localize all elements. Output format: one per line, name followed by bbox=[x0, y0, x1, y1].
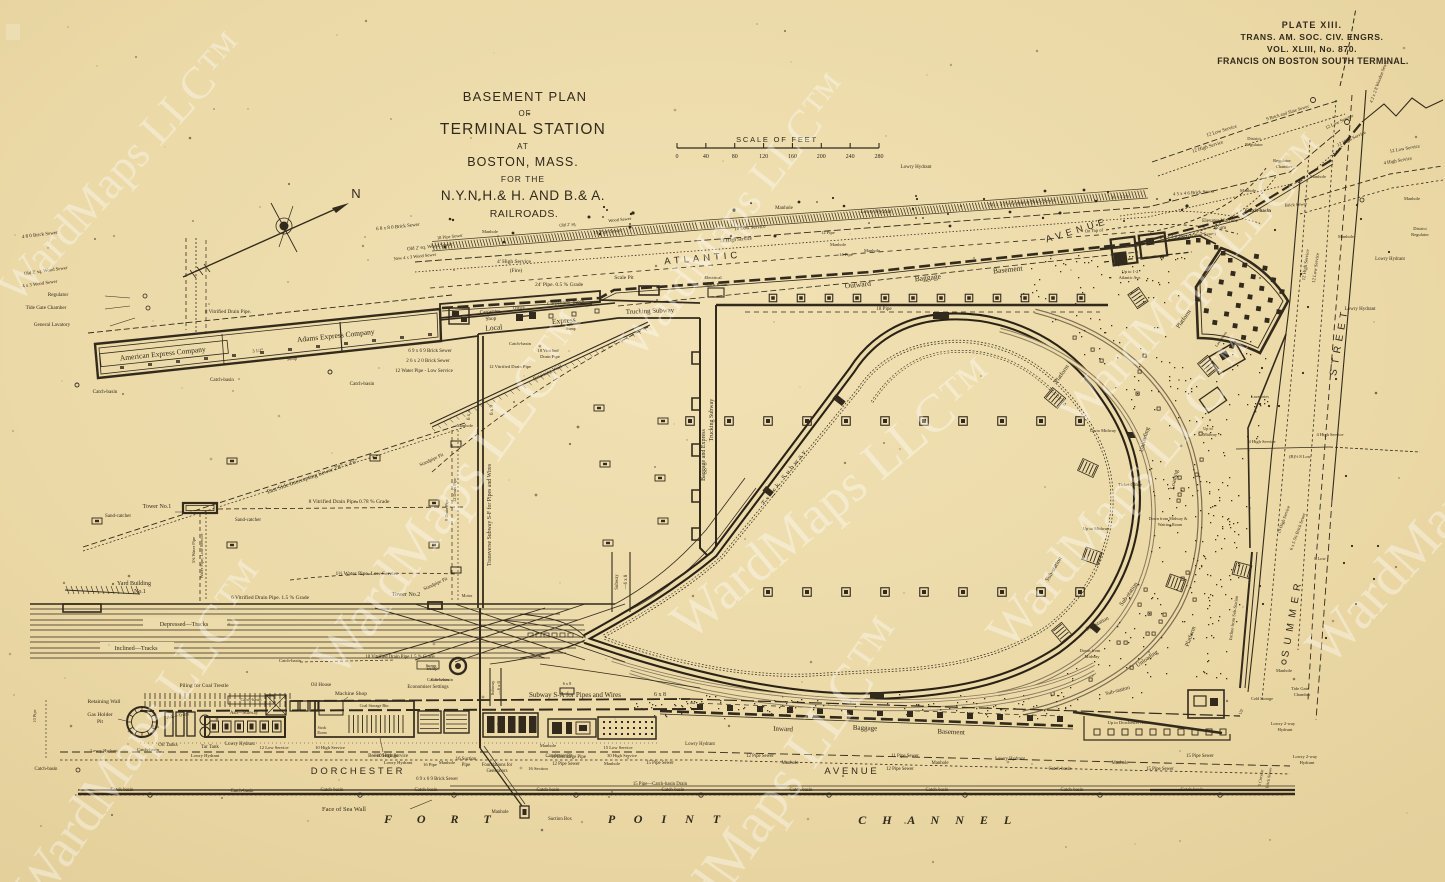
svg-text:BOSTON, MASS.: BOSTON, MASS. bbox=[467, 155, 578, 169]
svg-text:Lowry Hydrant: Lowry Hydrant bbox=[995, 757, 1025, 762]
svg-text:Lowry Hydrant: Lowry Hydrant bbox=[1375, 257, 1405, 262]
svg-text:16 Pipe: 16 Pipe bbox=[423, 762, 437, 767]
svg-text:Hydrant: Hydrant bbox=[1300, 760, 1315, 765]
svg-text:(Fire): (Fire) bbox=[510, 267, 523, 274]
svg-text:8 Low: 8 Low bbox=[1314, 556, 1326, 561]
svg-text:Lavatories: Lavatories bbox=[1251, 394, 1269, 399]
svg-text:Midway: Midway bbox=[1085, 654, 1101, 659]
svg-text:Machine Shop: Machine Shop bbox=[335, 691, 367, 697]
svg-text:Manhole: Manhole bbox=[1338, 234, 1354, 239]
svg-text:▮▮: ▮▮ bbox=[1160, 254, 1164, 259]
svg-text:80: 80 bbox=[732, 154, 738, 160]
svg-text:6 9 x 6 9 Brick Sewer: 6 9 x 6 9 Brick Sewer bbox=[408, 349, 452, 354]
svg-text:Coal Storage Bin: Coal Storage Bin bbox=[360, 703, 390, 708]
svg-text:District: District bbox=[1413, 226, 1427, 231]
svg-text:8 Vitrified Drain Pipe.: 8 Vitrified Drain Pipe. bbox=[205, 308, 251, 315]
svg-text:Waiting Room: Waiting Room bbox=[1158, 522, 1183, 527]
svg-text:Basement: Basement bbox=[937, 728, 965, 737]
svg-text:Manhole: Manhole bbox=[830, 242, 846, 247]
svg-text:Manhole: Manhole bbox=[1276, 668, 1292, 673]
svg-text:Inclined—Tracks: Inclined—Tracks bbox=[114, 645, 158, 652]
svg-text:Pipe: Pipe bbox=[462, 763, 471, 768]
svg-text:Stock: Stock bbox=[318, 726, 327, 730]
svg-text:DORCHESTER: DORCHESTER bbox=[311, 766, 406, 777]
svg-text:Lowry Hydrant: Lowry Hydrant bbox=[1345, 307, 1377, 312]
svg-text:Motor: Motor bbox=[462, 593, 473, 598]
svg-text:Manhole: Manhole bbox=[604, 761, 620, 766]
svg-text:—10 High Service: —10 High Service bbox=[371, 754, 408, 759]
svg-text:Regulator: Regulator bbox=[48, 292, 69, 298]
svg-text:4 High Service: 4 High Service bbox=[1249, 439, 1276, 444]
svg-text:Suction Box: Suction Box bbox=[548, 817, 572, 822]
svg-text:16 Suction: 16 Suction bbox=[456, 757, 477, 762]
svg-text:15 Pipe Sewer: 15 Pipe Sewer bbox=[1146, 767, 1174, 772]
svg-text:Down from: Down from bbox=[1080, 648, 1101, 653]
svg-text:Lowry Hydrant: Lowry Hydrant bbox=[384, 760, 413, 765]
svg-text:Sand-catcher: Sand-catcher bbox=[235, 518, 261, 523]
svg-text:—6 x 8: —6 x 8 bbox=[496, 681, 501, 696]
svg-text:12 Low Service: 12 Low Service bbox=[259, 745, 288, 750]
svg-text:Face of Sea Wall: Face of Sea Wall bbox=[322, 806, 366, 813]
svg-text:—14 Discharge Pipe: —14 Discharge Pipe bbox=[545, 755, 586, 760]
svg-text:Lowry Hydrant: Lowry Hydrant bbox=[901, 165, 933, 170]
svg-text:Down from Midway &: Down from Midway & bbox=[1149, 516, 1188, 521]
svg-text:PLATE XIII.: PLATE XIII. bbox=[1282, 20, 1343, 30]
svg-text:Lowry 2-way: Lowry 2-way bbox=[1293, 754, 1318, 759]
svg-text:Chamber: Chamber bbox=[1294, 692, 1311, 697]
svg-text:P O I N T: P O I N T bbox=[608, 812, 728, 826]
svg-text:Catch-basin: Catch-basin bbox=[210, 378, 234, 383]
svg-text:AVENUE: AVENUE bbox=[824, 766, 879, 777]
svg-text:Manhole: Manhole bbox=[482, 229, 498, 234]
svg-text:Sump: Sump bbox=[426, 667, 438, 672]
svg-text:Catch-basin: Catch-basin bbox=[279, 658, 302, 663]
svg-text:6 x 8: 6 x 8 bbox=[563, 681, 572, 686]
svg-text:F O R T: F O R T bbox=[383, 812, 502, 826]
svg-text:15 Low Service: 15 Low Service bbox=[603, 745, 632, 750]
svg-text:40: 40 bbox=[703, 154, 709, 160]
svg-text:Catch-basin: Catch-basin bbox=[93, 389, 118, 395]
svg-text:280: 280 bbox=[875, 154, 884, 160]
svg-text:Up: Up bbox=[1238, 709, 1244, 715]
svg-text:Manhole: Manhole bbox=[931, 761, 948, 766]
svg-text:10 Pipe: 10 Pipe bbox=[32, 709, 37, 722]
svg-text:Economiser Settings: Economiser Settings bbox=[407, 685, 448, 690]
svg-text:District: District bbox=[1247, 136, 1261, 141]
svg-text:Ash—Subway: Ash—Subway bbox=[230, 711, 259, 716]
svg-text:Lowry Hydrant: Lowry Hydrant bbox=[685, 742, 715, 747]
svg-text:5⅝ Water Pipe: 5⅝ Water Pipe bbox=[191, 537, 196, 563]
svg-text:4' High Service: 4' High Service bbox=[497, 259, 532, 265]
svg-text:18 Pipe: 18 Pipe bbox=[876, 307, 892, 312]
svg-text:Hydrant: Hydrant bbox=[1278, 727, 1293, 732]
svg-text:Shop: Shop bbox=[485, 316, 496, 323]
svg-text:Lowry Hydrant: Lowry Hydrant bbox=[861, 210, 893, 215]
svg-text:Regulator: Regulator bbox=[1411, 232, 1429, 237]
svg-text:Office: Office bbox=[513, 305, 525, 311]
svg-text:FOR THE: FOR THE bbox=[501, 174, 545, 184]
svg-text:Manhole: Manhole bbox=[1111, 761, 1128, 766]
svg-text:Tide Gate: Tide Gate bbox=[1291, 686, 1309, 691]
svg-text:(B)½ 8 Low: (B)½ 8 Low bbox=[1289, 454, 1312, 459]
svg-text:Subway S-A for Pipes and Wires: Subway S-A for Pipes and Wires bbox=[529, 691, 621, 699]
svg-text:4 High Service: 4 High Service bbox=[1317, 432, 1344, 437]
svg-text:30 High Service: 30 High Service bbox=[607, 753, 637, 758]
svg-text:2 6 x 2 0 Brick Sewer: 2 6 x 2 0 Brick Sewer bbox=[406, 359, 450, 364]
svg-text:6 x 8: 6 x 8 bbox=[654, 692, 666, 698]
svg-text:Catch-basin: Catch-basin bbox=[427, 677, 450, 682]
svg-text:200: 200 bbox=[817, 154, 826, 160]
svg-text:12 Pipe Sewer: 12 Pipe Sewer bbox=[886, 767, 914, 772]
svg-text:14 Pipe: 14 Pipe bbox=[839, 252, 853, 257]
svg-text:N.Y.N.H.& H. AND B.& A.: N.Y.N.H.& H. AND B.& A. bbox=[441, 188, 605, 203]
svg-text:Manhole: Manhole bbox=[1404, 196, 1420, 201]
svg-text:C H A N N E L: C H A N N E L bbox=[858, 813, 1017, 827]
svg-text:11 Pipe Sewer: 11 Pipe Sewer bbox=[891, 754, 919, 759]
svg-text:FRANCIS ON BOSTON SOUTH TERMIN: FRANCIS ON BOSTON SOUTH TERMINAL. bbox=[1217, 56, 1408, 66]
svg-text:Lowry Hydrant: Lowry Hydrant bbox=[225, 742, 255, 747]
svg-text:Tide Gate Chamber: Tide Gate Chamber bbox=[26, 305, 67, 311]
svg-text:Retaining Wall: Retaining Wall bbox=[88, 699, 121, 705]
svg-text:Subway: Subway bbox=[615, 574, 620, 590]
svg-text:8 Vitrified Drain Pipe. 0.78: 8 Vitrified Drain Pipe. 0.78 % Grade bbox=[309, 498, 390, 505]
svg-text:Scale Pit: Scale Pit bbox=[614, 275, 634, 281]
svg-text:Gas Holder: Gas Holder bbox=[87, 712, 112, 718]
svg-text:Trucking Subway: Trucking Subway bbox=[709, 399, 715, 442]
svg-text:TRANS. AM. SOC. CIV. ENGRS.: TRANS. AM. SOC. CIV. ENGRS. bbox=[1240, 32, 1383, 42]
svg-text:Catch-basin: Catch-basin bbox=[1049, 767, 1073, 772]
svg-text:—6 x 8: —6 x 8 bbox=[624, 574, 629, 590]
svg-text:N: N bbox=[351, 186, 360, 201]
svg-text:VOL. XLIII, No. 870.: VOL. XLIII, No. 870. bbox=[1267, 44, 1357, 54]
svg-text:15 Pipe Sewer: 15 Pipe Sewer bbox=[1186, 754, 1214, 759]
svg-text:Sand-catcher: Sand-catcher bbox=[105, 514, 131, 519]
svg-text:6 9 x 6 9 Brick Sewer: 6 9 x 6 9 Brick Sewer bbox=[416, 777, 458, 782]
svg-text:240: 240 bbox=[846, 154, 855, 160]
svg-text:Atlantic Ave.: Atlantic Ave. bbox=[1119, 275, 1142, 280]
svg-text:RAILROADS.: RAILROADS. bbox=[490, 208, 559, 220]
svg-text:Catch-basin: Catch-basin bbox=[241, 697, 263, 702]
svg-text:15 Pipe Sewer: 15 Pipe Sewer bbox=[646, 761, 674, 766]
svg-text:Yard Building: Yard Building bbox=[117, 581, 151, 587]
svg-text:12 Pipe Sewer: 12 Pipe Sewer bbox=[552, 762, 580, 767]
svg-text:AT: AT bbox=[517, 142, 529, 151]
svg-text:Baggage and Express: Baggage and Express bbox=[701, 429, 707, 481]
svg-text:Regulator: Regulator bbox=[1245, 142, 1263, 147]
svg-text:Catch-basin: Catch-basin bbox=[35, 767, 59, 772]
svg-text:Manhole: Manhole bbox=[439, 760, 455, 765]
svg-text:Lowry 2-way: Lowry 2-way bbox=[1271, 721, 1296, 726]
svg-text:12 Pipe: 12 Pipe bbox=[821, 230, 835, 235]
svg-text:Up to 1-2: Up to 1-2 bbox=[1122, 269, 1138, 274]
svg-text:Manhole: Manhole bbox=[864, 248, 880, 253]
svg-text:Tar Tank: Tar Tank bbox=[201, 745, 219, 750]
svg-text:Lowry Hydrant: Lowry Hydrant bbox=[191, 753, 220, 758]
svg-text:Oil House: Oil House bbox=[311, 683, 332, 688]
svg-text:Catch-basin: Catch-basin bbox=[350, 381, 375, 387]
svg-text:10 High Service: 10 High Service bbox=[315, 745, 345, 750]
svg-text:16 Section: 16 Section bbox=[528, 766, 548, 771]
svg-text:Tower No.1: Tower No.1 bbox=[143, 504, 172, 510]
svg-text:Up to Dorchester Ave.: Up to Dorchester Ave. bbox=[1108, 720, 1149, 725]
svg-text:TERMINAL STATION: TERMINAL STATION bbox=[440, 121, 606, 138]
svg-text:Manhole: Manhole bbox=[775, 206, 794, 211]
svg-text:Cold Storage: Cold Storage bbox=[1251, 696, 1273, 701]
svg-text:Foundations for: Foundations for bbox=[482, 763, 513, 768]
svg-text:12 Water Pipe - Low Service: 12 Water Pipe - Low Service bbox=[395, 369, 453, 374]
svg-text:No.1: No.1 bbox=[134, 589, 146, 595]
svg-text:General Lavatory: General Lavatory bbox=[34, 322, 71, 328]
svg-text:Subway: Subway bbox=[490, 680, 495, 695]
svg-text:Manhole: Manhole bbox=[540, 743, 556, 748]
svg-text:24' Pipe. 0.5 % Grade: 24' Pipe. 0.5 % Grade bbox=[535, 282, 584, 288]
svg-text:0: 0 bbox=[676, 154, 679, 160]
svg-text:10 Vitrified Drain Pipe 1.5 %: 10 Vitrified Drain Pipe 1.5 % Grade bbox=[365, 655, 434, 660]
svg-text:Room: Room bbox=[317, 731, 326, 735]
svg-text:Pit: Pit bbox=[97, 719, 104, 725]
svg-text:BASEMENT PLAN: BASEMENT PLAN bbox=[463, 89, 587, 104]
